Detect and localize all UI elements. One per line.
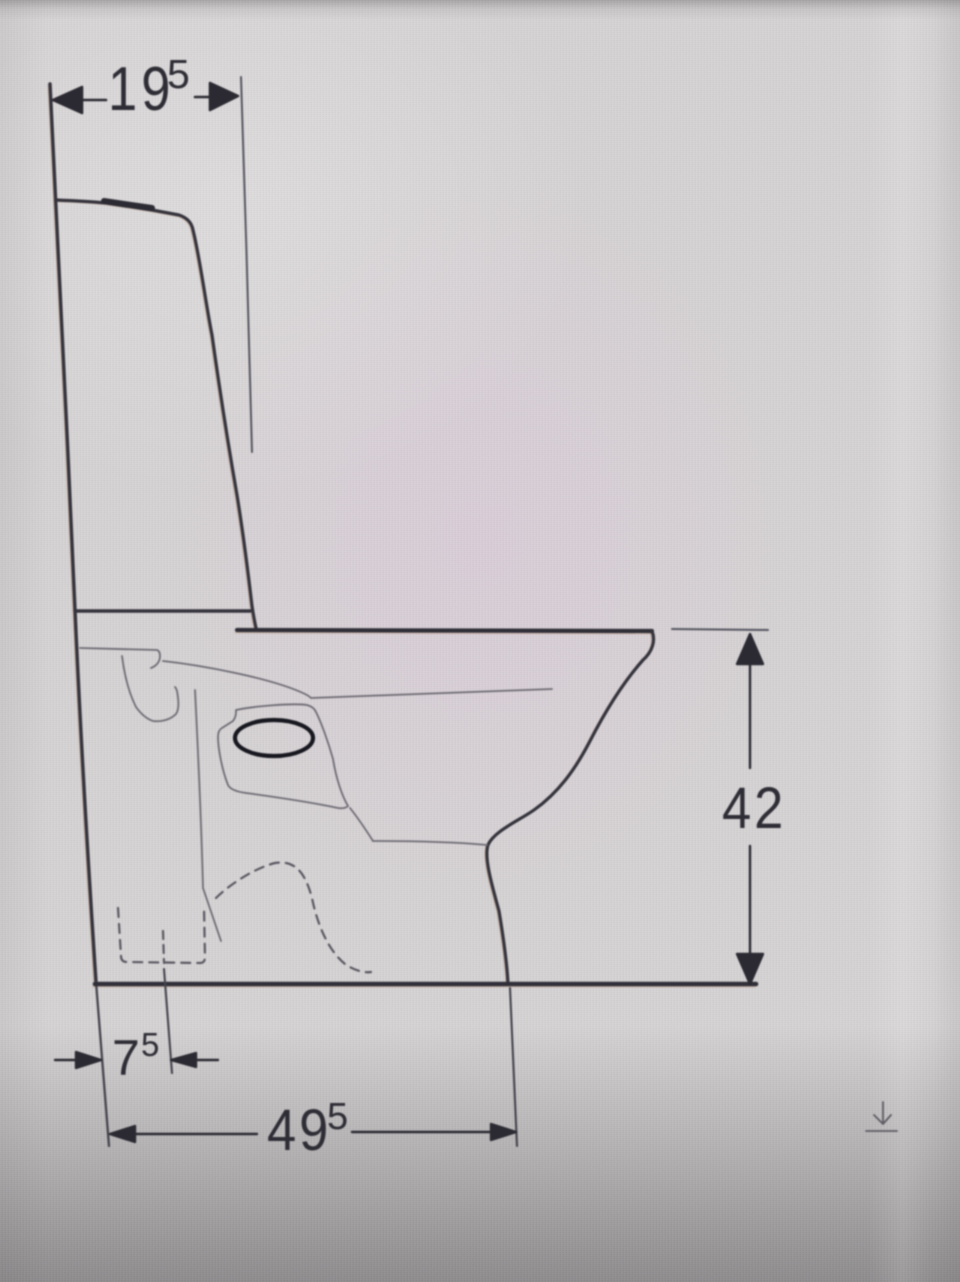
svg-text:7: 7 <box>112 1030 140 1086</box>
svg-text:19: 19 <box>108 55 174 124</box>
svg-text:5: 5 <box>327 1096 348 1138</box>
svg-text:49: 49 <box>267 1097 331 1162</box>
svg-text:5: 5 <box>141 1026 159 1063</box>
svg-text:42: 42 <box>722 775 786 840</box>
svg-text:5: 5 <box>167 51 190 97</box>
